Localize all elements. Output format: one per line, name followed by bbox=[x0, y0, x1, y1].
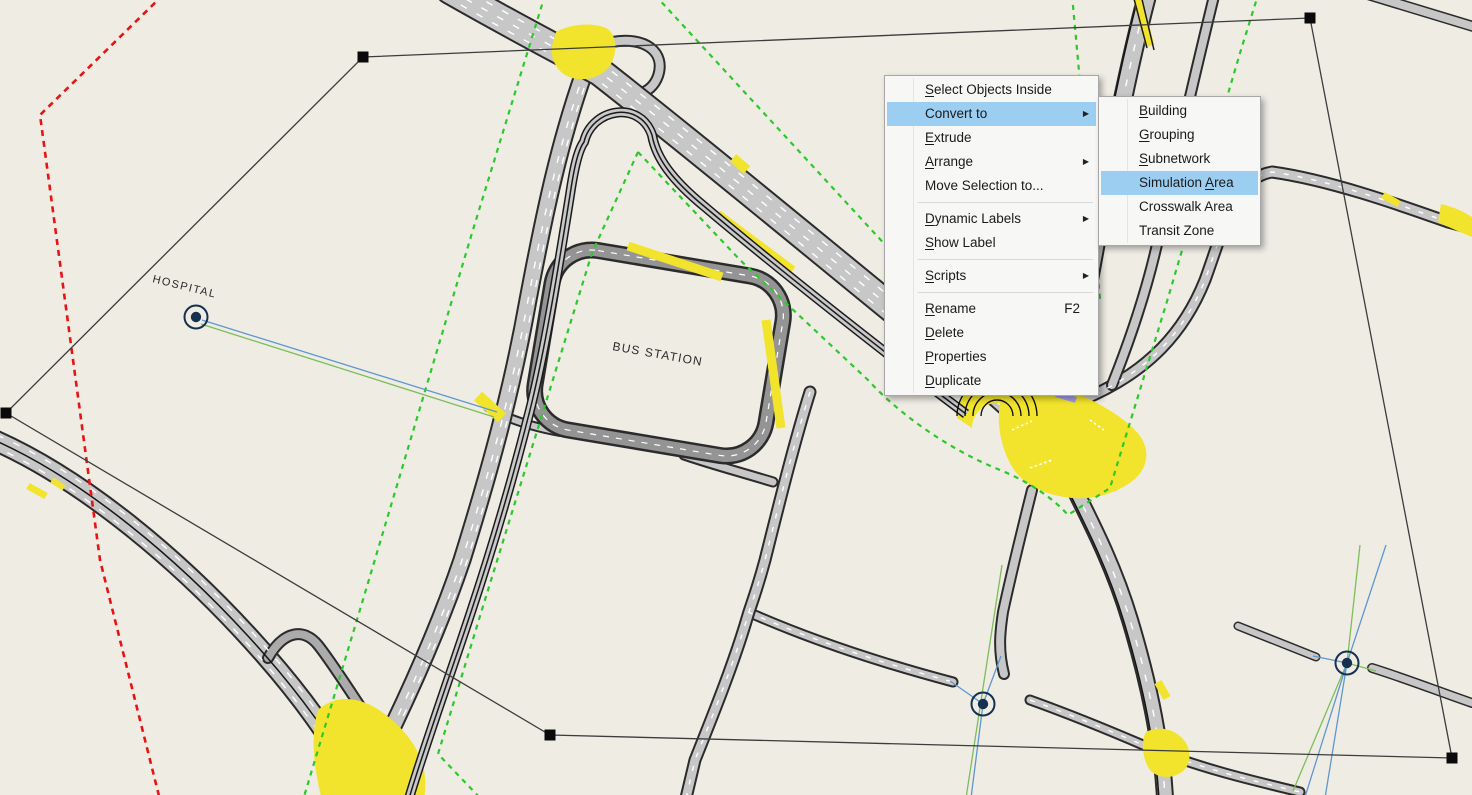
traffic-editor-viewport: HOSPITAL BUS STATION Select Objects Insi… bbox=[0, 0, 1472, 795]
submenu-arrow-icon: ▶ bbox=[1083, 207, 1089, 231]
menu-item-show-label[interactable]: Show Label bbox=[887, 231, 1096, 255]
menu-item-crosswalk-area[interactable]: Crosswalk Area bbox=[1101, 195, 1258, 219]
menu-item-grouping[interactable]: Grouping bbox=[1101, 123, 1258, 147]
menu-item-label: Crosswalk Area bbox=[1139, 199, 1233, 214]
menu-item-dynamic-labels[interactable]: Dynamic Labels▶ bbox=[887, 207, 1096, 231]
menu-separator bbox=[918, 292, 1093, 293]
menu-item-simulation-area[interactable]: Simulation Area bbox=[1101, 171, 1258, 195]
menu-item-label: Subnetwork bbox=[1139, 151, 1210, 166]
menu-item-label: Duplicate bbox=[925, 373, 981, 388]
menu-item-rename[interactable]: RenameF2 bbox=[887, 297, 1096, 321]
menu-item-extrude[interactable]: Extrude bbox=[887, 126, 1096, 150]
menu-item-label: Building bbox=[1139, 103, 1187, 118]
menu-item-label: Convert to bbox=[925, 106, 987, 121]
menu-separator bbox=[918, 259, 1093, 260]
menu-item-convert-to[interactable]: Convert to▶ bbox=[887, 102, 1096, 126]
menu-separator bbox=[918, 202, 1093, 203]
menu-item-move-selection-to[interactable]: Move Selection to... bbox=[887, 174, 1096, 198]
menu-shortcut: F2 bbox=[1064, 297, 1080, 321]
menu-item-label: Dynamic Labels bbox=[925, 211, 1021, 226]
menu-item-label: Simulation Area bbox=[1139, 175, 1234, 190]
menu-item-subnetwork[interactable]: Subnetwork bbox=[1101, 147, 1258, 171]
menu-item-select-objects-inside[interactable]: Select Objects Inside bbox=[887, 78, 1096, 102]
menu-item-label: Arrange bbox=[925, 154, 973, 169]
menu-item-label: Properties bbox=[925, 349, 987, 364]
menu-item-label: Move Selection to... bbox=[925, 178, 1044, 193]
submenu-arrow-icon: ▶ bbox=[1083, 264, 1089, 288]
menu-item-label: Transit Zone bbox=[1139, 223, 1214, 238]
menu-item-label: Delete bbox=[925, 325, 964, 340]
menu-item-label: Rename bbox=[925, 301, 976, 316]
submenu-arrow-icon: ▶ bbox=[1083, 150, 1089, 174]
menu-item-transit-zone[interactable]: Transit Zone bbox=[1101, 219, 1258, 243]
menu-item-scripts[interactable]: Scripts▶ bbox=[887, 264, 1096, 288]
menu-item-label: Show Label bbox=[925, 235, 996, 250]
context-menu: Select Objects InsideConvert to▶ExtrudeA… bbox=[884, 75, 1099, 396]
menu-item-label: Extrude bbox=[925, 130, 972, 145]
menu-item-duplicate[interactable]: Duplicate bbox=[887, 369, 1096, 393]
menu-item-building[interactable]: Building bbox=[1101, 99, 1258, 123]
menu-item-properties[interactable]: Properties bbox=[887, 345, 1096, 369]
submenu-arrow-icon: ▶ bbox=[1083, 102, 1089, 126]
menu-item-label: Grouping bbox=[1139, 127, 1195, 142]
menu-item-label: Select Objects Inside bbox=[925, 82, 1052, 97]
menu-item-label: Scripts bbox=[925, 268, 966, 283]
menu-item-arrange[interactable]: Arrange▶ bbox=[887, 150, 1096, 174]
menu-item-delete[interactable]: Delete bbox=[887, 321, 1096, 345]
convert-to-submenu: BuildingGroupingSubnetworkSimulation Are… bbox=[1098, 96, 1261, 246]
